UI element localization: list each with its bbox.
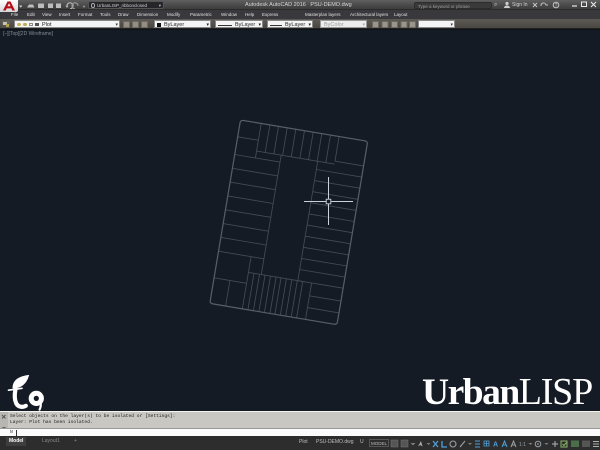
svg-text:A: A bbox=[493, 442, 498, 449]
svg-text:1:1: 1:1 bbox=[519, 442, 526, 448]
svg-text:?: ? bbox=[555, 3, 558, 9]
